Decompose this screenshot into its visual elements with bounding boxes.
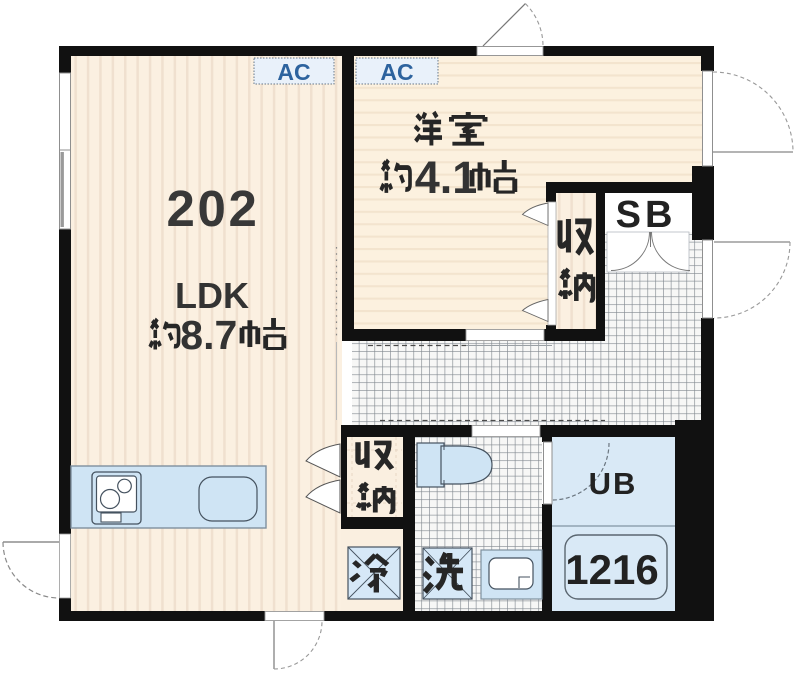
- svg-text:8.7: 8.7: [180, 312, 237, 358]
- svg-text:AC: AC: [277, 59, 310, 85]
- svg-text:UB: UB: [589, 466, 638, 501]
- svg-text:1216: 1216: [565, 546, 658, 593]
- svg-text:AC: AC: [380, 59, 413, 85]
- svg-text:202: 202: [167, 180, 260, 237]
- svg-text:SB: SB: [616, 194, 677, 236]
- svg-text:4.1: 4.1: [415, 152, 478, 203]
- svg-text:LDK: LDK: [175, 275, 249, 316]
